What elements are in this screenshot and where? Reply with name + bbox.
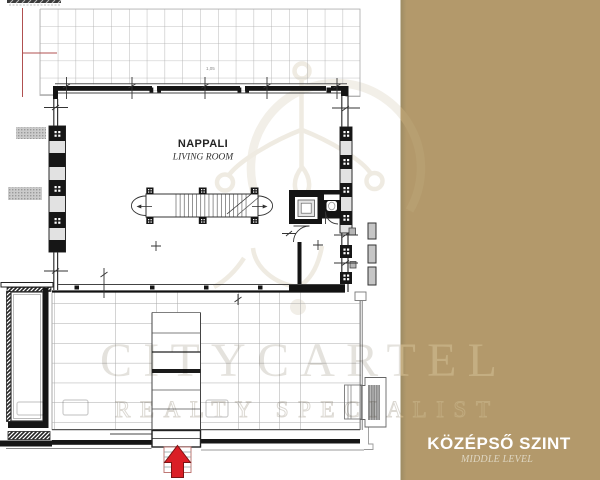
- svg-text:NAPPALI: NAPPALI: [178, 138, 228, 150]
- svg-text:KÖZÉPSŐ SZINT: KÖZÉPSŐ SZINT: [427, 434, 571, 453]
- svg-text:LIVING ROOM: LIVING ROOM: [172, 153, 235, 163]
- svg-text:1,05: 1,05: [206, 66, 215, 71]
- svg-text:MIDDLE LEVEL: MIDDLE LEVEL: [460, 454, 533, 465]
